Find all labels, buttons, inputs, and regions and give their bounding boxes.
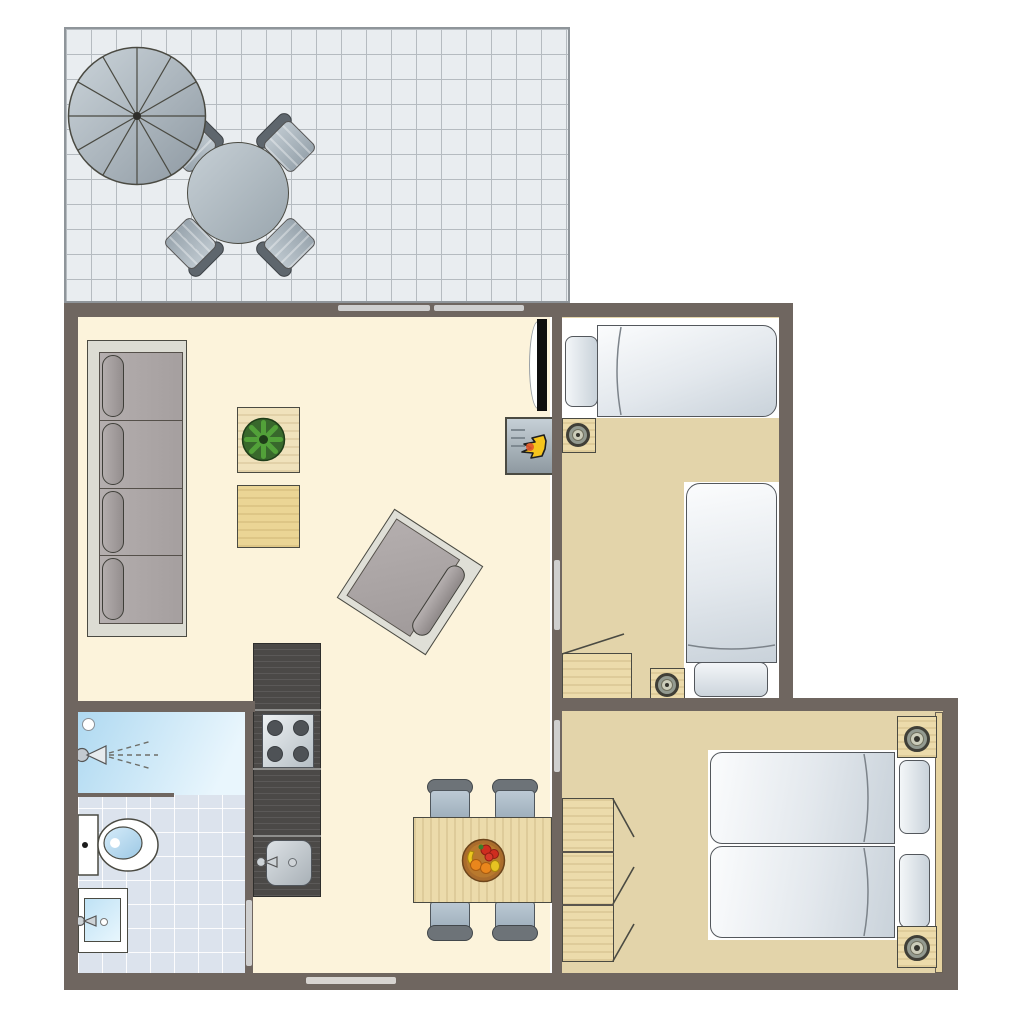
floorplan-canvas [0, 0, 1024, 1024]
wall-bottom [64, 973, 958, 990]
wall-middle [552, 698, 958, 711]
single-bed-2-pillow [694, 662, 768, 697]
cabinet [562, 653, 632, 703]
wardrobe [562, 798, 614, 962]
burner [293, 720, 309, 736]
wall-bedroom2-right [943, 698, 958, 990]
faucet-icon [76, 912, 100, 930]
toilet-icon [76, 810, 166, 880]
wall-bedroom1-right [779, 303, 793, 711]
flame-icon [518, 429, 548, 463]
dining-chair-back [492, 925, 538, 941]
blanket-fold [857, 753, 875, 843]
wardrobe-divider [562, 904, 614, 906]
wardrobe-open-door-lines [612, 797, 638, 965]
basin-drain [100, 918, 108, 926]
blanket-fold [857, 847, 875, 937]
wardrobe-divider [562, 851, 614, 853]
wall-left [64, 303, 78, 990]
blanket-fold [686, 640, 777, 656]
blanket-fold [610, 326, 626, 416]
sink-drain [288, 858, 297, 867]
dining-chair-seat [495, 790, 535, 820]
sofa-back-cushion [102, 355, 124, 417]
dining-chair-back [427, 925, 473, 941]
door-bedroom2 [554, 720, 560, 772]
double-bed-pillow-bottom [899, 854, 930, 928]
lamp-icon [904, 726, 930, 752]
burner [267, 746, 283, 762]
dining-chair-seat [430, 790, 470, 820]
shower-drain [82, 718, 95, 731]
shower-partition [78, 793, 174, 797]
burner [293, 746, 309, 762]
fruit-bowl-icon [461, 838, 506, 883]
sofa-seat [100, 421, 182, 489]
faucet-icon [257, 853, 281, 871]
single-bed-2-mattress [686, 483, 777, 663]
counter-divider [253, 768, 321, 770]
single-bed-1-pillow [565, 336, 598, 407]
sofa-seat [100, 489, 182, 557]
lamp-icon [655, 673, 679, 697]
lamp-icon [904, 935, 930, 961]
sliding-door-segment [434, 305, 524, 311]
parasol-icon [66, 45, 208, 187]
wall-living-right [552, 317, 562, 973]
lamp-icon [566, 423, 590, 447]
sofa-seats [99, 352, 183, 624]
sofa [87, 340, 187, 637]
double-bed-pillow-top [899, 760, 930, 834]
sofa-seat [100, 353, 182, 421]
showerhead-icon [78, 737, 174, 777]
sofa-seat [100, 556, 182, 623]
counter-divider [253, 835, 321, 837]
door-bedroom1 [554, 560, 560, 630]
window-bottom [306, 977, 396, 984]
tv [537, 319, 547, 411]
side-table [237, 485, 300, 548]
sofa-back-cushion [102, 558, 124, 620]
burner [267, 720, 283, 736]
terrace-tiles [64, 27, 570, 303]
sofa-back-cushion [102, 491, 124, 553]
plant-icon [241, 417, 286, 462]
sliding-door-segment [338, 305, 430, 311]
counter-divider [253, 709, 321, 711]
door-bathroom [246, 900, 252, 966]
sofa-back-cushion [102, 423, 124, 485]
cabinet-open-door-line [560, 630, 628, 656]
wall-bathroom-top [64, 701, 255, 712]
